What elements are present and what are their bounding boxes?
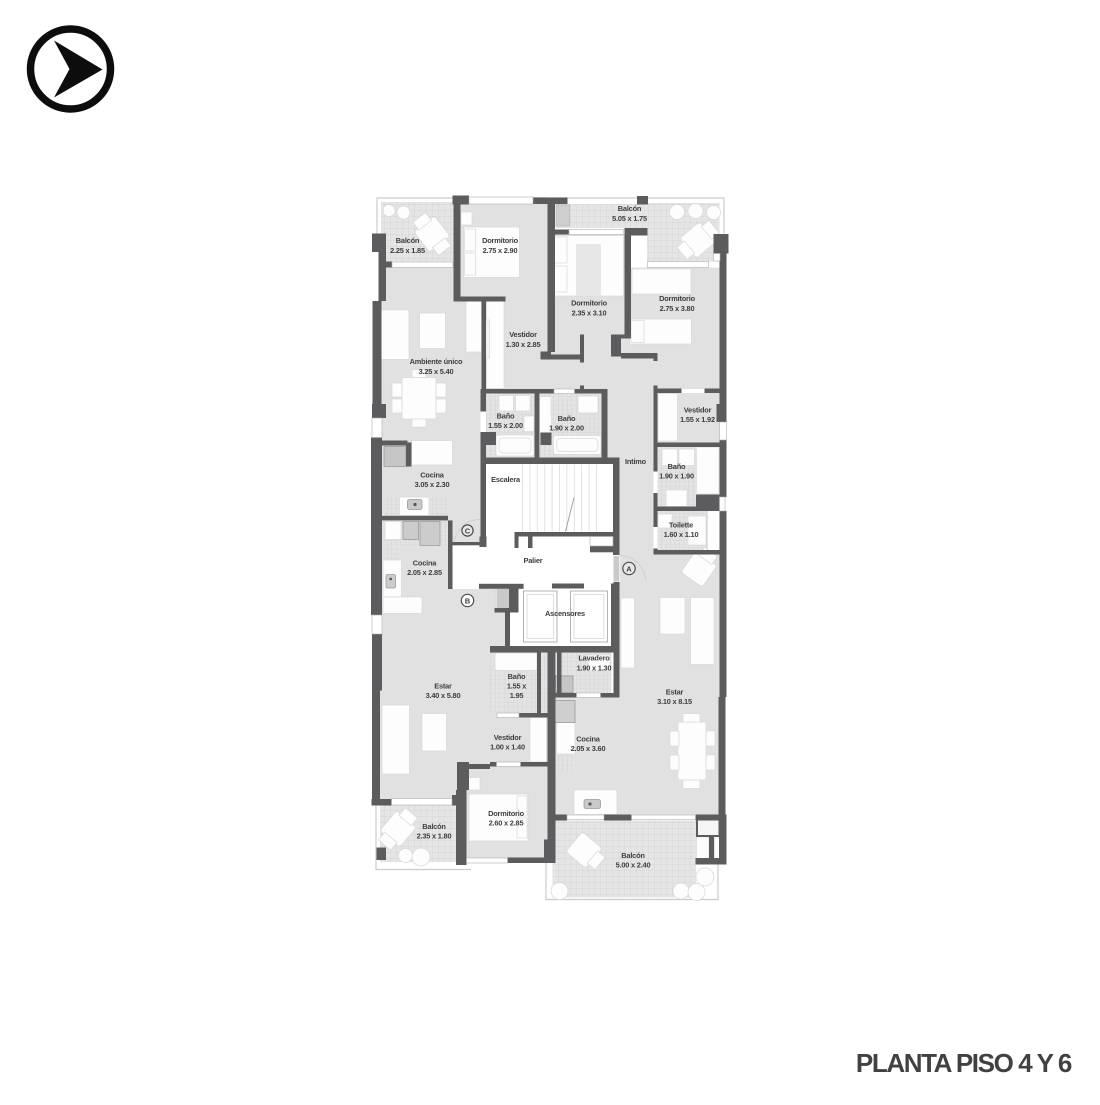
svg-text:Toilette: Toilette xyxy=(669,521,693,530)
svg-text:3.05 x 2.30: 3.05 x 2.30 xyxy=(415,480,450,489)
svg-text:1.00 x 1.40: 1.00 x 1.40 xyxy=(490,743,525,752)
svg-text:3.40 x 5.80: 3.40 x 5.80 xyxy=(426,691,461,700)
svg-text:2.75 x 2.90: 2.75 x 2.90 xyxy=(483,246,518,255)
svg-text:Baño: Baño xyxy=(497,412,515,421)
svg-text:1.55 x 1.92: 1.55 x 1.92 xyxy=(680,415,715,424)
svg-text:1.90 x 2.00: 1.90 x 2.00 xyxy=(549,424,584,433)
svg-text:Vestidor: Vestidor xyxy=(494,733,522,742)
svg-text:1.55 x: 1.55 x xyxy=(507,682,527,691)
svg-text:Escalera: Escalera xyxy=(491,475,521,484)
svg-text:PLANTA PISO 4 Y 6: PLANTA PISO 4 Y 6 xyxy=(856,1048,1072,1078)
svg-text:2.25 x 1.85: 2.25 x 1.85 xyxy=(390,246,425,255)
svg-text:3.25 x 5.40: 3.25 x 5.40 xyxy=(419,367,454,376)
svg-text:2.05 x 2.85: 2.05 x 2.85 xyxy=(407,568,442,577)
svg-text:Dormitorio: Dormitorio xyxy=(659,294,695,303)
svg-text:Ambiente único: Ambiente único xyxy=(410,357,463,366)
svg-text:Vestidor: Vestidor xyxy=(684,406,712,415)
svg-text:2.75 x 3.80: 2.75 x 3.80 xyxy=(660,304,695,313)
svg-text:Baño: Baño xyxy=(668,462,686,471)
svg-text:B: B xyxy=(465,596,471,605)
svg-text:C: C xyxy=(465,526,471,535)
svg-text:2.60 x 2.85: 2.60 x 2.85 xyxy=(489,819,524,828)
svg-text:Intimo: Intimo xyxy=(625,457,647,466)
svg-text:Palier: Palier xyxy=(524,556,543,565)
svg-text:1.30 x 2.85: 1.30 x 2.85 xyxy=(506,340,541,349)
svg-text:5.05 x 1.75: 5.05 x 1.75 xyxy=(612,214,647,223)
svg-text:Dormitorio: Dormitorio xyxy=(482,236,518,245)
svg-text:Balcón: Balcón xyxy=(396,236,420,245)
svg-text:Balcón: Balcón xyxy=(618,204,642,213)
svg-text:1.60 x 1.10: 1.60 x 1.10 xyxy=(664,530,699,539)
svg-text:2.35 x 3.10: 2.35 x 3.10 xyxy=(572,309,607,318)
svg-text:Cocina: Cocina xyxy=(420,471,445,480)
svg-text:2.05 x 3.60: 2.05 x 3.60 xyxy=(571,744,606,753)
svg-text:1.90 x 1.30: 1.90 x 1.30 xyxy=(577,664,612,673)
svg-text:2.35 x 1.80: 2.35 x 1.80 xyxy=(417,832,452,841)
svg-text:3.10 x 8.15: 3.10 x 8.15 xyxy=(657,697,692,706)
svg-text:Estar: Estar xyxy=(434,682,452,691)
svg-text:Cocina: Cocina xyxy=(576,735,601,744)
svg-text:Balcón: Balcón xyxy=(422,822,446,831)
svg-text:Dormitorio: Dormitorio xyxy=(488,809,524,818)
svg-text:A: A xyxy=(626,564,632,573)
svg-text:1.95: 1.95 xyxy=(510,691,524,700)
svg-text:Baño: Baño xyxy=(558,414,576,423)
svg-text:5.00 x 2.40: 5.00 x 2.40 xyxy=(616,861,651,870)
svg-text:Vestidor: Vestidor xyxy=(509,330,537,339)
svg-text:Baño: Baño xyxy=(508,672,526,681)
svg-text:1.90 x 1.90: 1.90 x 1.90 xyxy=(659,472,694,481)
svg-text:Ascensores: Ascensores xyxy=(545,609,585,618)
svg-text:1.55 x 2.00: 1.55 x 2.00 xyxy=(488,421,523,430)
svg-text:Lavadero: Lavadero xyxy=(578,654,610,663)
svg-text:Cocina: Cocina xyxy=(413,559,438,568)
svg-text:Estar: Estar xyxy=(666,688,684,697)
svg-text:Dormitorio: Dormitorio xyxy=(571,299,607,308)
svg-text:Balcón: Balcón xyxy=(621,851,645,860)
